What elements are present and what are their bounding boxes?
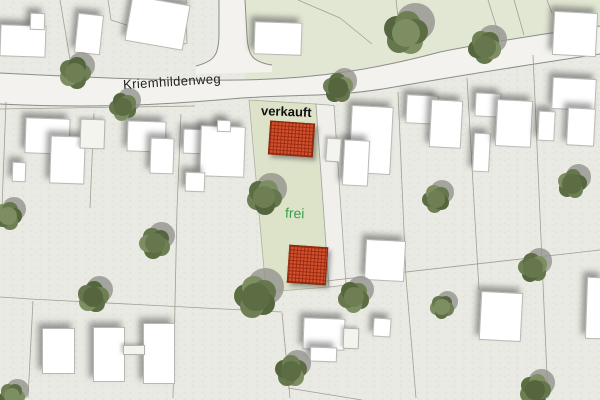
tree <box>245 178 283 216</box>
building <box>217 120 231 132</box>
building <box>551 77 597 111</box>
site-plan-map: Kriemhildenweg verkauft frei <box>0 0 600 400</box>
building <box>479 291 524 342</box>
tree <box>518 373 552 400</box>
tree <box>556 168 588 200</box>
building <box>472 133 491 173</box>
building <box>585 277 600 340</box>
tree-canopy-blob <box>242 283 270 311</box>
tree <box>0 201 23 231</box>
building <box>30 13 46 31</box>
boundary-line <box>28 301 33 398</box>
sold-building-footprint <box>287 245 329 286</box>
building <box>552 11 598 57</box>
building <box>149 138 174 175</box>
building <box>566 107 596 146</box>
building <box>302 317 345 350</box>
tree-canopy-blob <box>114 98 132 116</box>
tree-canopy-blob <box>525 380 545 400</box>
building <box>199 125 246 178</box>
building <box>42 328 75 374</box>
tree <box>58 56 92 90</box>
tree-canopy-blob <box>474 36 496 58</box>
building <box>310 347 338 363</box>
boundary-line <box>177 114 181 209</box>
tree <box>517 252 549 284</box>
tree-canopy-blob <box>328 78 347 97</box>
boundary-line <box>2 102 6 207</box>
tree <box>274 354 308 388</box>
boundary-line <box>288 388 362 400</box>
building <box>495 99 533 148</box>
tree <box>429 294 455 320</box>
tree-canopy-blob <box>434 299 450 315</box>
building <box>364 239 406 282</box>
tree <box>76 280 110 314</box>
free-status-label: frei <box>285 205 305 222</box>
boundary-line <box>108 0 111 20</box>
tree-canopy-blob <box>562 174 581 193</box>
boundary-line <box>0 297 30 299</box>
sold-status-label: verkauft <box>261 103 312 120</box>
tree <box>382 9 430 57</box>
boundary-line <box>533 55 548 398</box>
tree <box>233 274 279 320</box>
tree <box>0 382 26 400</box>
tree <box>421 184 451 214</box>
tree-canopy-blob <box>427 190 445 208</box>
tree <box>337 280 371 314</box>
boundary-line <box>406 278 416 398</box>
building <box>372 317 391 337</box>
building <box>342 139 370 186</box>
building <box>253 21 302 56</box>
building <box>79 119 105 150</box>
building <box>343 328 360 350</box>
tree <box>322 72 354 104</box>
building <box>123 345 145 355</box>
sold-building-footprint <box>268 120 315 157</box>
building <box>74 13 104 55</box>
tree <box>467 29 503 65</box>
tree-canopy-blob <box>523 258 542 277</box>
boundary-line <box>0 106 195 109</box>
building <box>537 111 556 142</box>
tree <box>138 226 172 260</box>
building <box>12 162 27 182</box>
building <box>325 138 342 163</box>
building <box>185 172 206 193</box>
tree <box>108 92 138 122</box>
building <box>143 323 175 384</box>
building <box>429 99 463 149</box>
building <box>93 327 125 382</box>
